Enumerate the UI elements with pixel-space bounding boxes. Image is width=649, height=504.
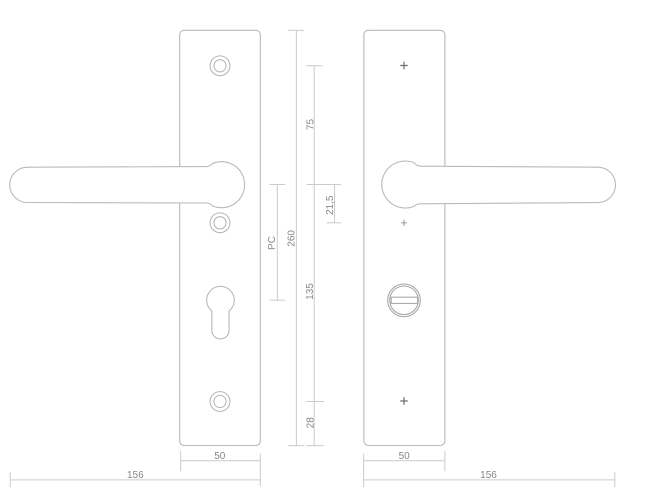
svg-text:260: 260 <box>287 230 298 247</box>
svg-text:PC: PC <box>267 236 278 250</box>
svg-text:156: 156 <box>127 470 144 481</box>
svg-text:21,5: 21,5 <box>325 195 336 215</box>
svg-text:28: 28 <box>305 417 316 429</box>
svg-text:135: 135 <box>305 283 316 300</box>
svg-text:50: 50 <box>399 451 411 462</box>
svg-text:75: 75 <box>305 119 316 131</box>
svg-text:50: 50 <box>214 451 226 462</box>
svg-text:156: 156 <box>480 470 497 481</box>
